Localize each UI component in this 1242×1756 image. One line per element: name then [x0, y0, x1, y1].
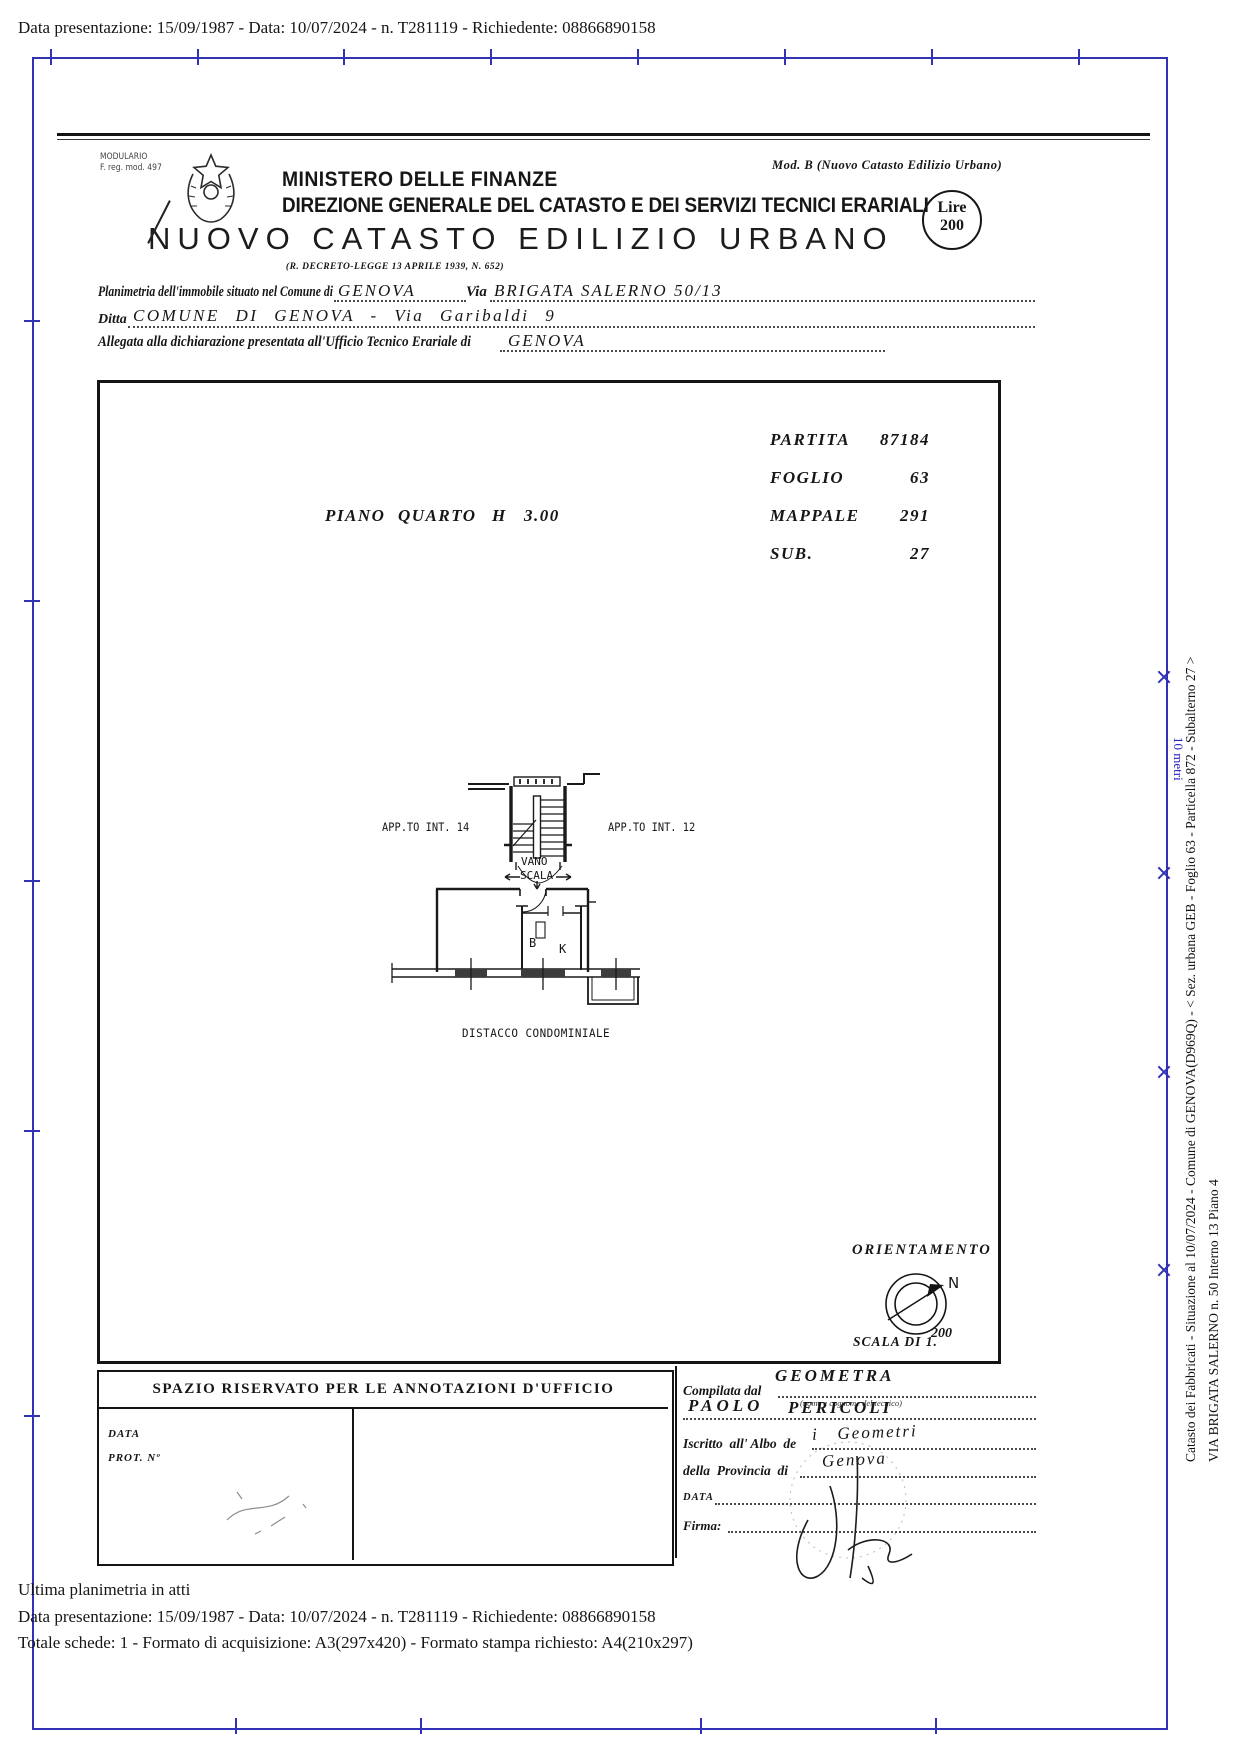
- frame-tick: [24, 1415, 40, 1417]
- field-label: SUB.: [770, 544, 813, 564]
- field-label: PARTITA: [770, 430, 850, 450]
- room-k-label: K: [559, 942, 566, 956]
- via-label: Via: [466, 284, 487, 301]
- height-label: H: [492, 506, 507, 526]
- dotted-line: [683, 1418, 1036, 1420]
- office-box-header-rule: [99, 1407, 668, 1409]
- frame-tick: [24, 880, 40, 882]
- dotted-line: [128, 326, 1035, 328]
- firma-label: Firma:: [683, 1518, 721, 1534]
- apartment-left-label: APP.TO INT. 14: [382, 820, 469, 834]
- signature: [760, 1428, 935, 1593]
- modulario-note: MODULARIO F. reg. mod. 497: [100, 152, 162, 174]
- frame-tick: [931, 49, 933, 65]
- pencil-scribble: [215, 1478, 345, 1543]
- scale-value: 200: [931, 1326, 952, 1342]
- room-b-label: B: [529, 936, 536, 950]
- ruler-x-tick: [1156, 669, 1172, 685]
- ufficio-value: GENOVA: [508, 331, 586, 351]
- field-label: FOGLIO: [770, 468, 844, 488]
- modulario-line1: MODULARIO: [100, 152, 162, 163]
- lire-label: Lire: [924, 199, 980, 217]
- ruler-x-tick: [1156, 865, 1172, 881]
- office-box-title: SPAZIO RISERVATO PER LE ANNOTAZIONI D'UF…: [99, 1381, 668, 1398]
- field-value: 87184: [855, 430, 930, 450]
- mod-b-note: Mod. B (Nuovo Catasto Edilizio Urbano): [772, 158, 1002, 173]
- office-prot-label: PROT. Nº: [108, 1452, 160, 1464]
- compiler-last-name: PERICOLI: [788, 1398, 892, 1418]
- frame-tick: [343, 49, 345, 65]
- sidebar-address-reference: VIA BRIGATA SALERNO n. 50 Interno 13 Pia…: [1206, 1179, 1222, 1462]
- lire-stamp: Lire 200: [922, 190, 982, 250]
- comune-value: GENOVA: [338, 281, 416, 301]
- comune-label: Planimetria dell'immobile situato nel Co…: [98, 284, 333, 301]
- footer-line-3: Totale schede: 1 - Formato di acquisizio…: [18, 1633, 693, 1653]
- office-annotations-box: [97, 1370, 674, 1566]
- office-data-label: DATA: [108, 1428, 140, 1440]
- frame-tick: [490, 49, 492, 65]
- ministry-title: MINISTERO DELLE FINANZE: [282, 168, 558, 192]
- compiler-data-label: DATA: [683, 1492, 714, 1503]
- ruler-x-tick: [1156, 1064, 1172, 1080]
- ditta-value: COMUNE DI GENOVA - Via Garibaldi 9: [133, 306, 556, 326]
- frame-tick: [1078, 49, 1080, 65]
- frame-tick: [24, 600, 40, 602]
- piano-label: PIANO: [325, 506, 385, 526]
- modulario-line2: F. reg. mod. 497: [100, 163, 162, 174]
- apartment-right-label: APP.TO INT. 12: [608, 820, 695, 834]
- footer-line-1: Ultima planimetria in atti: [18, 1580, 190, 1600]
- sidebar-cadastre-reference: Catasto dei Fabbricati - Situazione al 1…: [1183, 657, 1199, 1462]
- field-value: 63: [855, 468, 930, 488]
- orientamento-label: ORIENTAMENTO: [852, 1242, 992, 1259]
- frame-tick: [235, 1718, 237, 1734]
- ufficio-label: Allegata alla dichiarazione presentata a…: [98, 334, 471, 351]
- frame-tick: [637, 49, 639, 65]
- frame-tick: [24, 320, 40, 322]
- frame-tick: [700, 1718, 702, 1734]
- vano-label: VANO: [521, 855, 548, 868]
- frame-tick: [784, 49, 786, 65]
- scale-label: SCALA DI 1.: [853, 1334, 938, 1350]
- form-top-rule: [57, 133, 1150, 136]
- distacco-label: DISTACCO CONDOMINIALE: [462, 1026, 610, 1040]
- form-top-rule-thin: [57, 139, 1150, 140]
- frame-tick: [197, 49, 199, 65]
- via-value: BRIGATA SALERNO 50/13: [494, 281, 723, 301]
- ruler-x-tick: [1156, 1262, 1172, 1278]
- document-title: NUOVO CATASTO EDILIZIO URBANO: [148, 221, 894, 257]
- height-value: 3.00: [524, 506, 560, 526]
- geometra-stamp: GEOMETRA: [775, 1366, 894, 1386]
- floor-plan-drawing: [370, 765, 650, 1010]
- piano-value: QUARTO: [398, 506, 477, 526]
- frame-tick: [24, 1130, 40, 1132]
- scala-label: SCALA: [520, 869, 553, 882]
- frame-tick: [420, 1718, 422, 1734]
- office-box-divider: [352, 1409, 354, 1560]
- scanned-cadastral-document: Data presentazione: 15/09/1987 - Data: 1…: [0, 0, 1242, 1756]
- compiler-panel-border: [675, 1366, 677, 1558]
- top-metadata-line: Data presentazione: 15/09/1987 - Data: 1…: [18, 18, 656, 38]
- compiler-first-name: PAOLO: [688, 1396, 763, 1416]
- field-value: 27: [855, 544, 930, 564]
- north-label: N: [948, 1274, 959, 1292]
- lire-value: 200: [924, 217, 980, 235]
- field-label: MAPPALE: [770, 506, 860, 526]
- direction-title: DIREZIONE GENERALE DEL CATASTO E DEI SER…: [282, 194, 929, 218]
- frame-tick: [50, 49, 52, 65]
- field-value: 291: [855, 506, 930, 526]
- footer-line-2: Data presentazione: 15/09/1987 - Data: 1…: [18, 1607, 656, 1627]
- state-emblem-icon: [182, 146, 240, 224]
- document-subtitle: (R. DECRETO-LEGGE 13 APRILE 1939, N. 652…: [280, 262, 510, 272]
- ditta-label: Ditta: [98, 312, 127, 328]
- frame-tick: [935, 1718, 937, 1734]
